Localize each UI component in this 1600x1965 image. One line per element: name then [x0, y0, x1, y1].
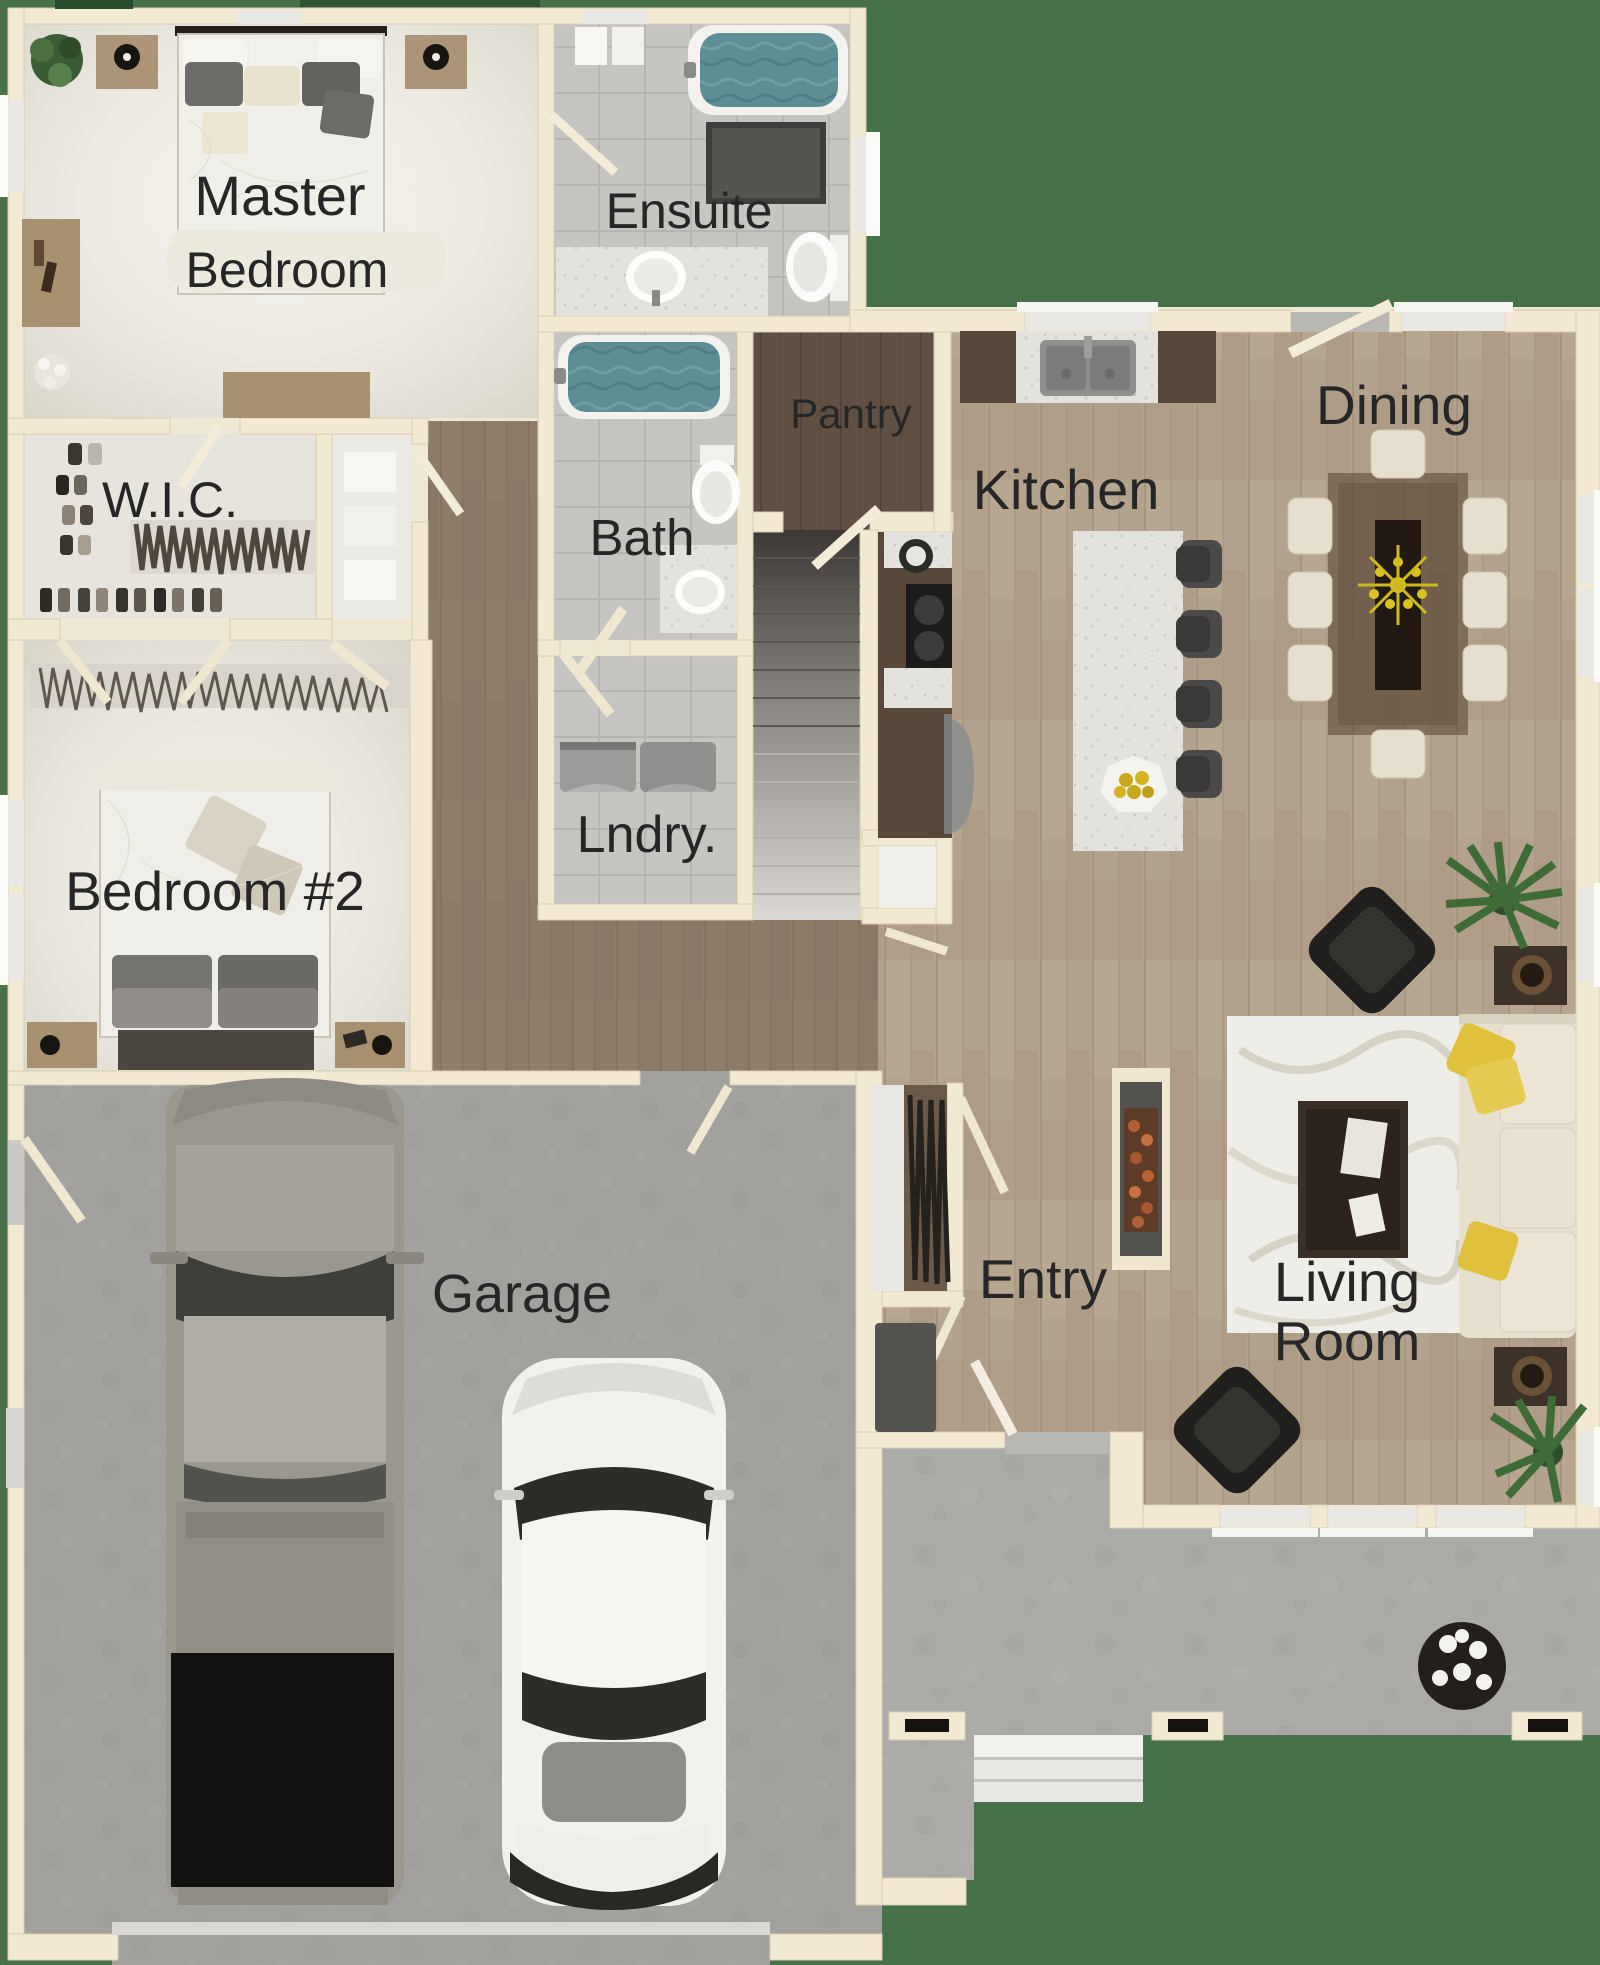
svg-text:W.I.C.: W.I.C. — [102, 472, 238, 528]
svg-text:Garage: Garage — [432, 1264, 612, 1324]
svg-text:Entry: Entry — [979, 1248, 1108, 1310]
svg-text:Bedroom #2: Bedroom #2 — [65, 860, 365, 922]
svg-text:Bath: Bath — [590, 509, 695, 566]
svg-text:Master: Master — [194, 164, 365, 227]
svg-text:Bedroom: Bedroom — [186, 242, 389, 298]
svg-text:Room: Room — [1274, 1310, 1421, 1372]
svg-text:Ensuite: Ensuite — [606, 183, 773, 239]
svg-text:Dining: Dining — [1316, 374, 1472, 436]
svg-text:Living: Living — [1274, 1250, 1420, 1313]
svg-text:Pantry: Pantry — [790, 390, 911, 437]
svg-text:Lndry.: Lndry. — [577, 806, 718, 864]
svg-text:Kitchen: Kitchen — [973, 458, 1160, 521]
